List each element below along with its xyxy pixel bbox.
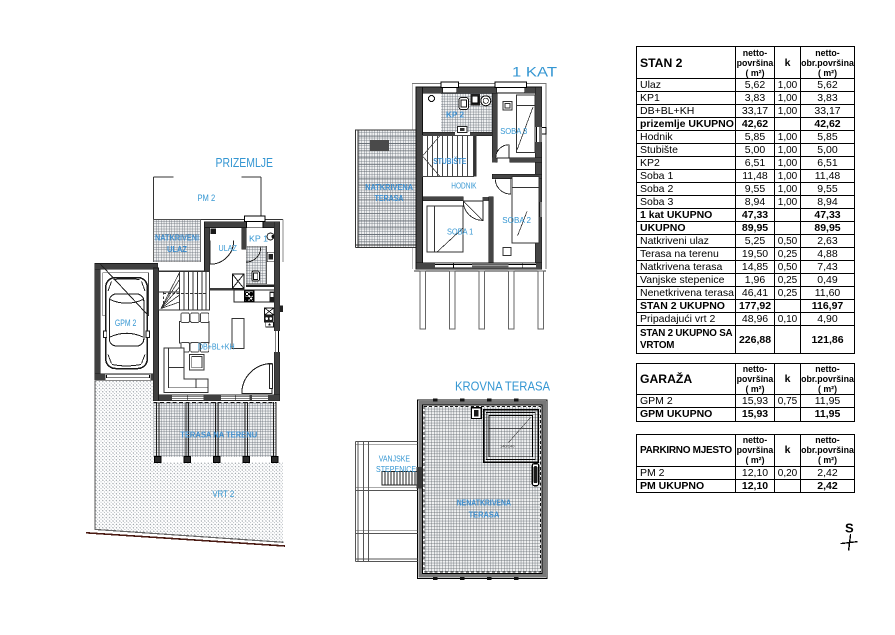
svg-text:SOBA 3: SOBA 3 bbox=[500, 126, 527, 136]
svg-text:KP 2: KP 2 bbox=[446, 110, 464, 120]
svg-text:SOBA 1: SOBA 1 bbox=[447, 226, 474, 236]
svg-text:VRT 2: VRT 2 bbox=[212, 489, 234, 499]
svg-text:VANJSKE: VANJSKE bbox=[379, 454, 410, 463]
svg-text:NATKRIVENI: NATKRIVENI bbox=[155, 234, 199, 243]
svg-text:ULAZ: ULAZ bbox=[167, 245, 187, 254]
svg-text:TERASA NA TERENU: TERASA NA TERENU bbox=[180, 431, 257, 440]
svg-text:SOBA 2: SOBA 2 bbox=[502, 215, 531, 225]
svg-text:PM 2: PM 2 bbox=[198, 193, 216, 203]
svg-text:HODNIK: HODNIK bbox=[451, 181, 477, 191]
svg-text:PRIZEMLJE: PRIZEMLJE bbox=[216, 155, 274, 170]
svg-text:ULAZ: ULAZ bbox=[219, 243, 237, 253]
svg-text:S: S bbox=[845, 520, 854, 535]
svg-text:GPM 2: GPM 2 bbox=[115, 318, 136, 328]
svg-text:STEPENICE: STEPENICE bbox=[376, 465, 416, 474]
svg-text:TERASA: TERASA bbox=[375, 194, 404, 203]
svg-text:KROVNA TERASA: KROVNA TERASA bbox=[455, 379, 550, 394]
svg-text:TERASA: TERASA bbox=[469, 510, 500, 519]
svg-text:NENATKRIVENA: NENATKRIVENA bbox=[457, 498, 511, 507]
svg-text:KP 1: KP 1 bbox=[249, 233, 268, 243]
svg-text:DB+BL+KH: DB+BL+KH bbox=[198, 341, 235, 351]
svg-text:140/140: 140/140 bbox=[500, 444, 515, 449]
svg-text:STUBIŠTE: STUBIŠTE bbox=[433, 157, 467, 166]
svg-text:1 KAT: 1 KAT bbox=[512, 65, 557, 80]
svg-text:NATKRIVENA: NATKRIVENA bbox=[365, 183, 413, 192]
